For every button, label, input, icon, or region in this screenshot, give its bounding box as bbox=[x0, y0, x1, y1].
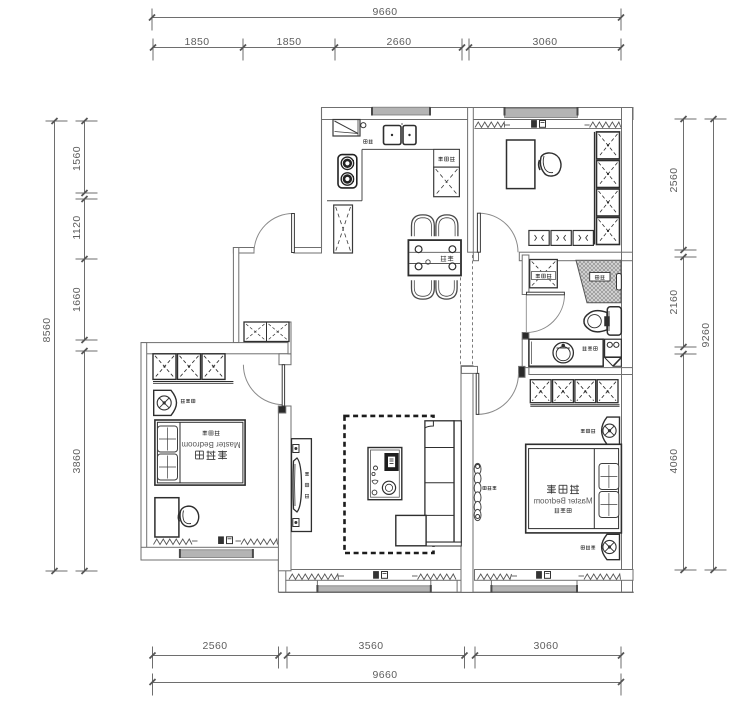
svg-text:2660: 2660 bbox=[387, 36, 412, 48]
svg-text:2560: 2560 bbox=[203, 640, 228, 652]
svg-text:1560: 1560 bbox=[71, 146, 83, 171]
svg-text:Master Bedroom: Master Bedroom bbox=[181, 440, 240, 449]
svg-text:3060: 3060 bbox=[534, 640, 559, 652]
svg-text:9660: 9660 bbox=[373, 6, 398, 18]
svg-text:2160: 2160 bbox=[668, 290, 680, 315]
svg-text:1850: 1850 bbox=[277, 36, 302, 48]
svg-text:Master Bedroom: Master Bedroom bbox=[533, 497, 592, 506]
svg-text:1120: 1120 bbox=[71, 215, 83, 239]
svg-text:3860: 3860 bbox=[71, 449, 83, 474]
svg-text:4060: 4060 bbox=[668, 449, 680, 474]
svg-text:1850: 1850 bbox=[185, 36, 210, 48]
svg-text:3560: 3560 bbox=[359, 640, 384, 652]
svg-text:1660: 1660 bbox=[71, 287, 83, 312]
svg-text:2560: 2560 bbox=[668, 168, 680, 193]
svg-text:9260: 9260 bbox=[700, 323, 712, 348]
svg-text:8560: 8560 bbox=[41, 318, 53, 343]
svg-text:3060: 3060 bbox=[533, 36, 558, 48]
svg-text:9660: 9660 bbox=[373, 669, 398, 681]
